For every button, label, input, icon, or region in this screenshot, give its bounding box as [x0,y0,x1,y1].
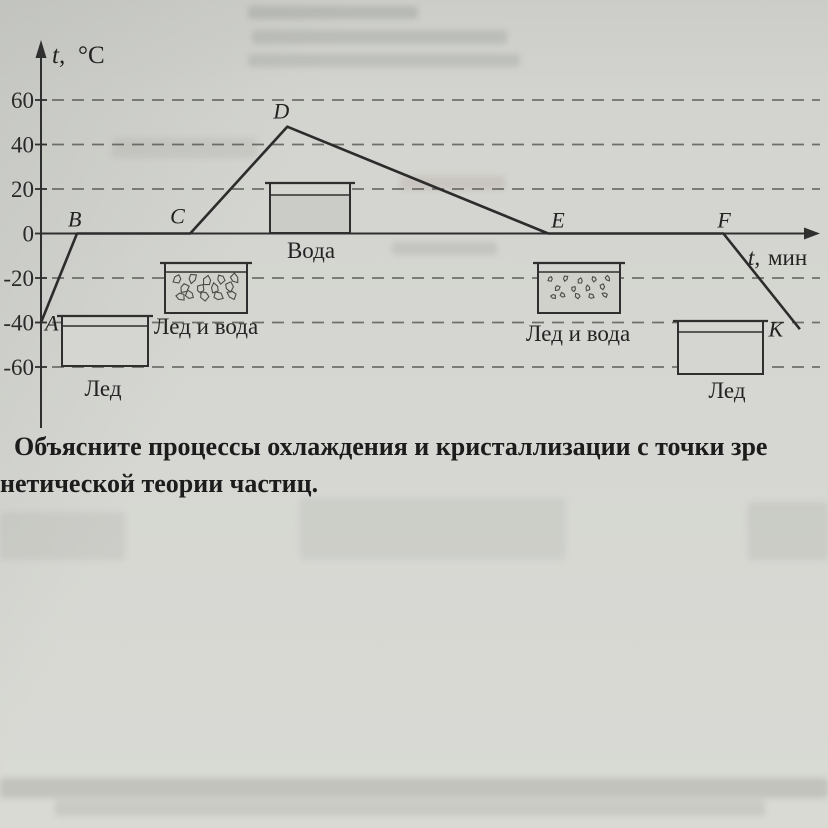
point-label-D: D [272,99,289,124]
show-through-smudge [300,498,565,560]
beaker-body [677,321,764,374]
beaker-ice [673,321,768,374]
container-label-ice-water-left: Лед и вода [154,314,258,339]
beaker-ice-water [160,263,252,313]
point-label-K: K [768,317,785,342]
photo-textbook-page: 6040200-20-40-60 ABCDEFK t, °C t, мин Ле… [0,0,828,828]
temperature-time-chart: 6040200-20-40-60 ABCDEFK t, °C t, мин Ле… [0,0,828,428]
y-tick-label: -60 [3,355,34,380]
point-label-E: E [550,208,565,233]
y-axis-label-unit: °C [78,42,105,69]
y-axis-label-symbol: t, [52,42,65,69]
task-line-1: Объясните процессы охлаждения и кристалл… [0,428,828,465]
y-tick-label: 0 [23,222,35,247]
point-label-A: A [43,311,59,336]
temperature-curve [41,127,800,330]
water-fill [270,195,350,233]
show-through-smudge [55,800,765,816]
y-tick-label: -20 [3,266,34,291]
beaker-body [61,316,149,366]
y-tick-label: 60 [11,88,34,113]
y-tick-label: -40 [3,311,34,336]
x-axis-label-unit: мин [768,245,807,270]
y-tick-label: 40 [11,133,34,158]
show-through-smudge [748,502,828,560]
beaker-ice-water [533,263,625,313]
show-through-smudge [0,778,828,798]
beaker-ice [57,316,153,366]
container-label-water: Вода [287,238,335,263]
point-label-F: F [716,208,731,233]
x-axis-arrow-icon [804,228,820,240]
x-axis-label-symbol: t, [748,245,760,270]
container-label-ice-water-right: Лед и вода [526,321,630,346]
task-line-2: нетической теории частиц. [0,465,828,502]
y-tick-label: 20 [11,177,34,202]
container-label-ice-right: Лед [708,378,745,403]
show-through-smudge [0,512,125,560]
y-axis-arrow-icon [36,40,47,58]
container-label-ice-left: Лед [84,376,121,401]
cooling-crystallization-curve: ABCDEFK [41,99,800,342]
point-label-B: B [68,207,81,232]
beaker-water [265,183,355,233]
point-label-C: C [170,204,185,229]
ice-water-fill [538,272,620,313]
task-text: Объясните процессы охлаждения и кристалл… [0,428,828,502]
